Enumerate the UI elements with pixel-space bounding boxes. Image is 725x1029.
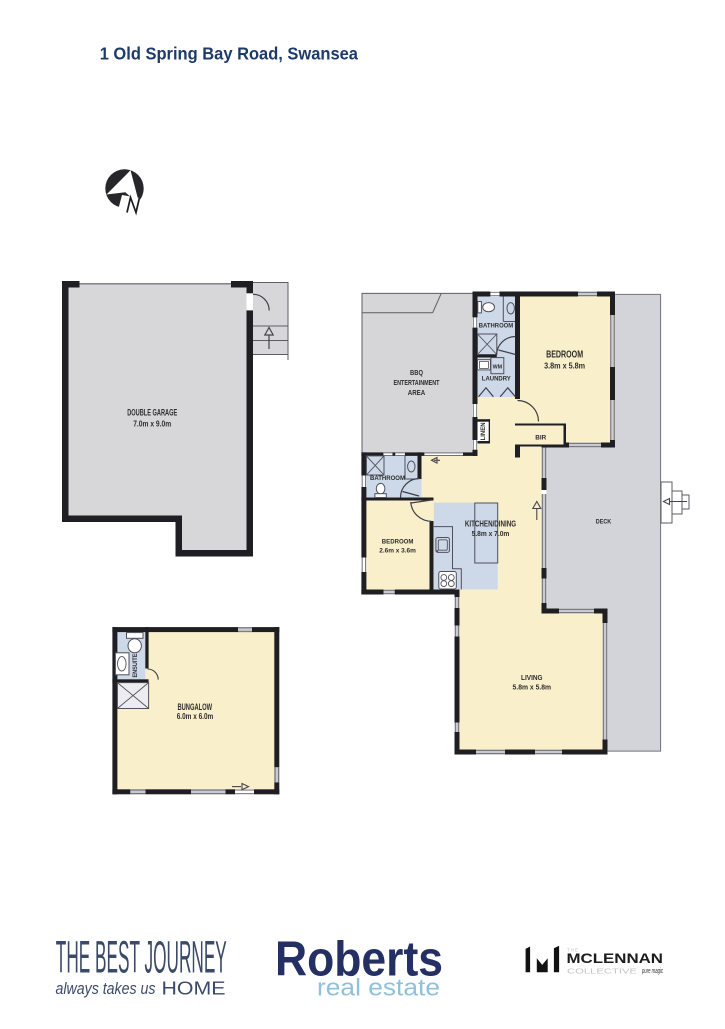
svg-text:LIVING: LIVING <box>521 673 543 682</box>
svg-text:real estate: real estate <box>317 975 440 1002</box>
svg-text:HOME: HOME <box>162 978 226 999</box>
svg-text:6.0m x 6.0m: 6.0m x 6.0m <box>177 711 214 721</box>
svg-text:3.8m x 5.8m: 3.8m x 5.8m <box>544 360 585 370</box>
svg-text:LAUNDRY: LAUNDRY <box>482 375 512 382</box>
svg-text:MCLENNAN: MCLENNAN <box>567 951 664 966</box>
svg-text:1 Old Spring Bay Road, Swansea: 1 Old Spring Bay Road, Swansea <box>100 44 359 64</box>
svg-text:WM: WM <box>493 364 503 370</box>
svg-text:LINEN: LINEN <box>481 422 487 440</box>
svg-text:2.6m x 3.6m: 2.6m x 3.6m <box>379 548 416 555</box>
svg-text:ENSUITE: ENSUITE <box>132 654 139 678</box>
svg-text:always takes us: always takes us <box>56 979 156 998</box>
svg-text:AREA: AREA <box>408 390 426 397</box>
svg-text:KITCHEN/DINING: KITCHEN/DINING <box>465 519 516 528</box>
svg-text:DECK: DECK <box>596 519 612 526</box>
svg-text:BBQ: BBQ <box>410 370 423 377</box>
svg-text:7.0m x 9.0m: 7.0m x 9.0m <box>133 419 171 429</box>
svg-text:pure magic: pure magic <box>641 966 663 975</box>
svg-text:BATHROOM: BATHROOM <box>370 475 405 482</box>
svg-text:BEDROOM: BEDROOM <box>546 350 583 361</box>
svg-text:COLLECTIVE: COLLECTIVE <box>567 969 638 976</box>
svg-text:DOUBLE GARAGE: DOUBLE GARAGE <box>127 408 177 419</box>
svg-text:BIR: BIR <box>535 434 546 441</box>
svg-text:ENTERTAINMENT: ENTERTAINMENT <box>394 380 441 387</box>
svg-text:BEDROOM: BEDROOM <box>382 538 414 545</box>
svg-text:BATHROOM: BATHROOM <box>479 322 514 329</box>
svg-text:THE BEST JOURNEY: THE BEST JOURNEY <box>56 932 227 983</box>
svg-text:5.8m x 7.0m: 5.8m x 7.0m <box>472 529 510 538</box>
svg-text:5.8m x 5.8m: 5.8m x 5.8m <box>513 683 552 692</box>
